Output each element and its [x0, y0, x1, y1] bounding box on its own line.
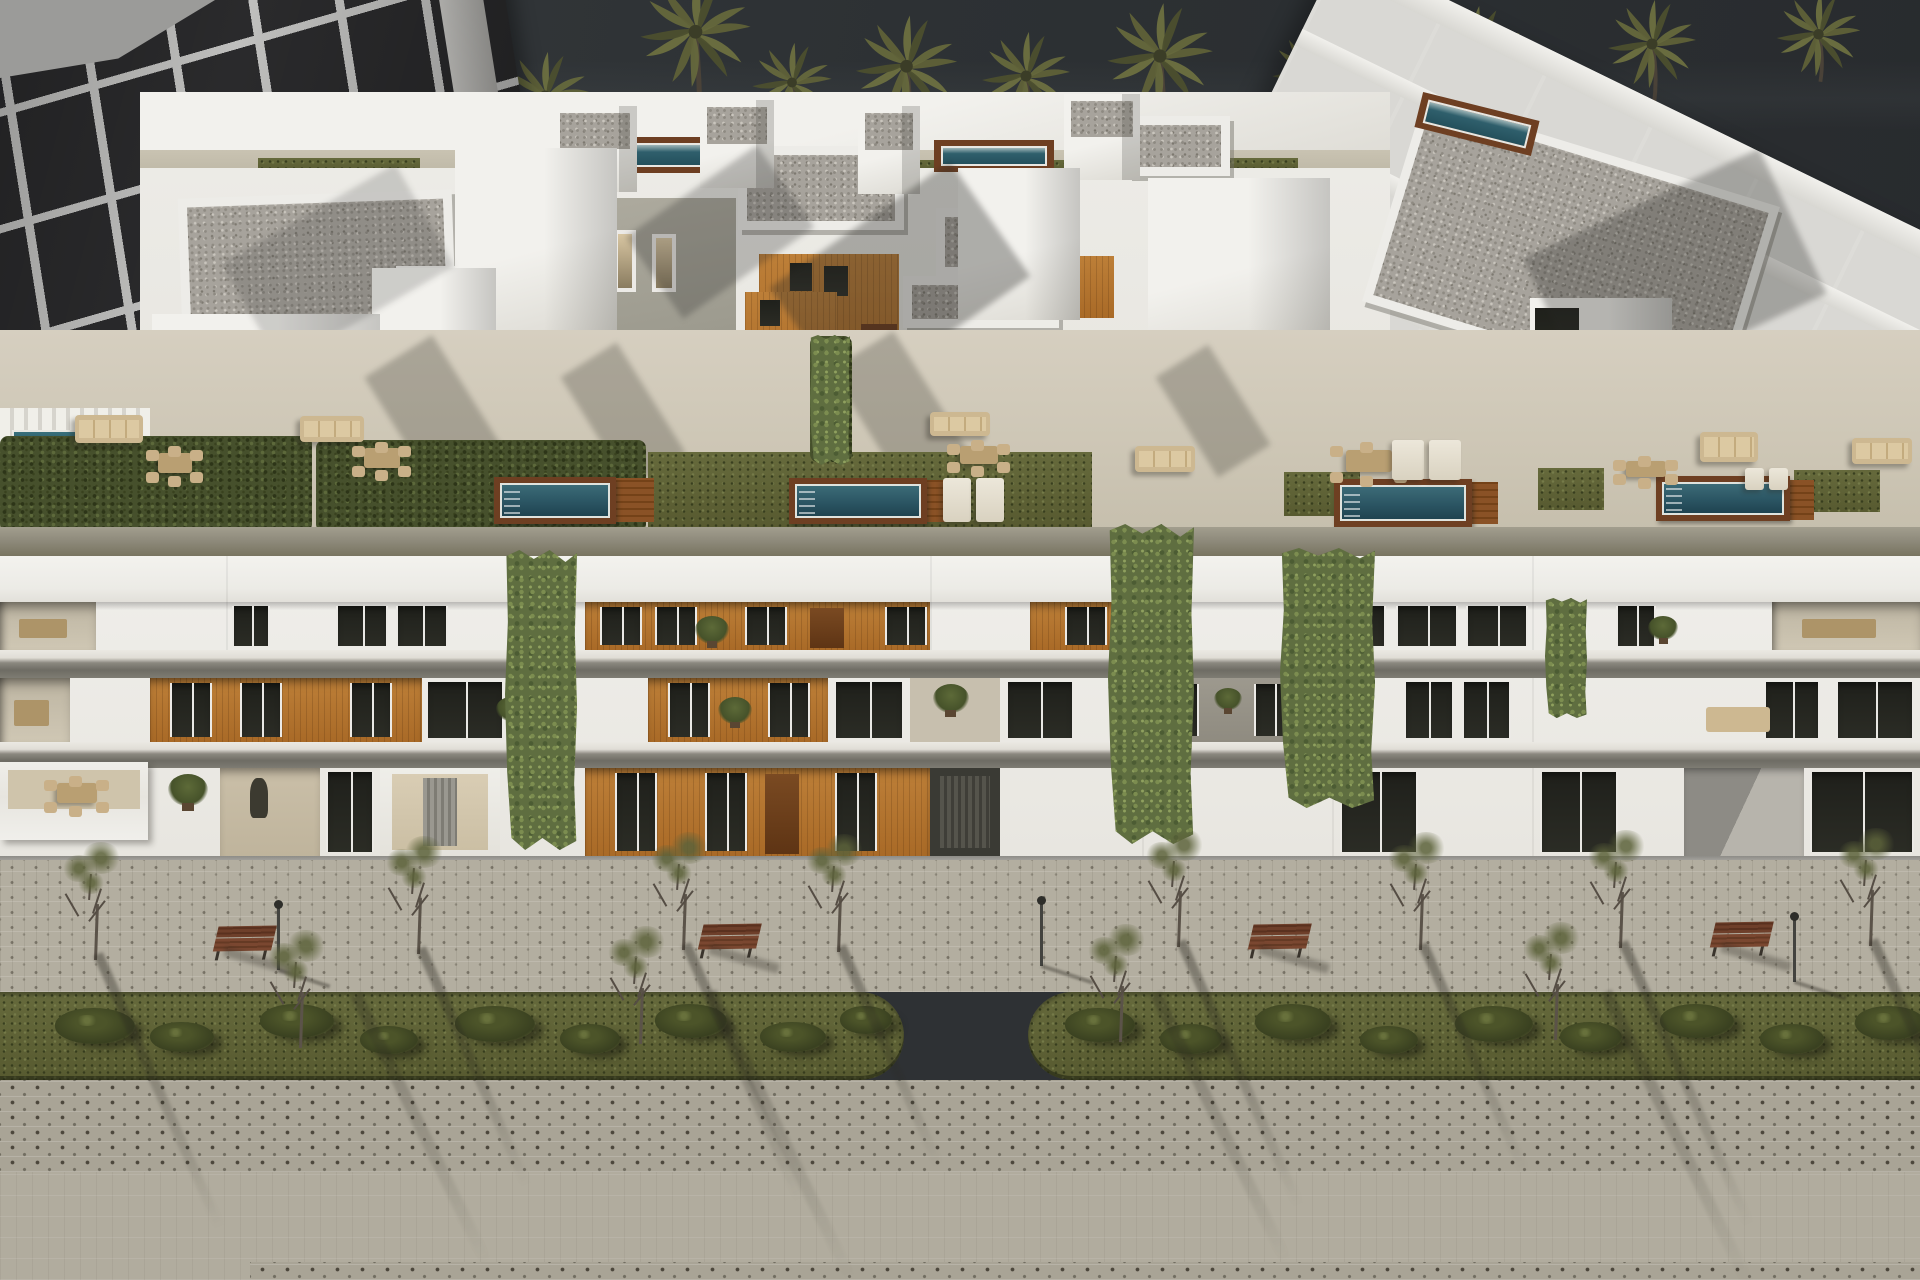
window	[834, 682, 904, 738]
white-volume	[1148, 178, 1330, 340]
balcony-slab	[0, 650, 1920, 678]
outdoor-dining-set	[146, 446, 204, 480]
shrub-highlight	[1873, 1013, 1894, 1023]
facade-bay-int	[0, 678, 70, 742]
outdoor-sofa	[1135, 446, 1195, 472]
pool-water	[500, 483, 610, 518]
facade-bay-win	[1000, 678, 1080, 742]
balcony-plant	[1648, 616, 1678, 640]
light-pole	[1793, 918, 1796, 982]
balcony-sofa	[1706, 707, 1770, 733]
window-mullion	[870, 682, 872, 738]
window-mullion	[1637, 606, 1639, 646]
shrub-highlight	[475, 1013, 499, 1024]
render-canvas	[0, 0, 1920, 1280]
lounger	[976, 478, 1004, 522]
pool-steps	[799, 488, 815, 514]
balcony-plant	[718, 697, 752, 724]
window-mullion	[1793, 682, 1795, 738]
window	[668, 683, 710, 737]
interior-furniture	[14, 700, 49, 726]
gravel-roof	[1128, 116, 1230, 176]
bench-back	[1713, 921, 1774, 933]
pool-water	[941, 146, 1047, 166]
facade-bay-woodrun	[648, 678, 828, 742]
window-mullion	[1876, 682, 1878, 738]
lounger	[1392, 440, 1424, 480]
dining-chair	[375, 442, 388, 453]
facade-bay-win2	[1392, 602, 1532, 650]
shrub-highlight	[75, 1015, 99, 1026]
window-mullion	[252, 606, 254, 646]
tree-foliage	[286, 930, 326, 962]
bottom-paver-edge	[250, 1262, 1920, 1280]
window	[1462, 682, 1512, 738]
shrub	[1760, 1024, 1824, 1054]
outdoor-dining-set	[1613, 456, 1679, 482]
sofa-cushions	[304, 421, 360, 437]
gravel-roof-surface	[1137, 125, 1221, 167]
outdoor-dining-set	[947, 440, 1011, 470]
plant-pot	[707, 641, 717, 648]
bench-back	[701, 923, 762, 935]
window-mullion	[1275, 684, 1277, 736]
sofa-cushions	[1856, 443, 1908, 459]
window-mullion	[262, 683, 264, 737]
window-mullion	[767, 607, 769, 645]
window-mullion	[1580, 772, 1582, 852]
shrub-highlight	[673, 1011, 695, 1021]
pool-steps	[1344, 489, 1360, 517]
shrub-highlight	[1679, 1011, 1701, 1021]
tree-foliage	[81, 842, 121, 874]
facade-bay-ramp	[1684, 768, 1804, 856]
tree-foliage	[626, 926, 666, 958]
window-mullion	[423, 606, 425, 646]
dining-chair	[146, 472, 159, 483]
bench-back	[216, 925, 277, 937]
dining-chair	[44, 802, 57, 813]
window-mullion	[351, 772, 353, 852]
tree-foliage	[1856, 828, 1896, 860]
dining-chair	[96, 802, 109, 813]
facade-bay-woodrun	[585, 602, 930, 650]
window	[240, 683, 282, 737]
facade-bay-portaldark	[930, 768, 1000, 856]
outdoor-dining-set	[44, 776, 110, 810]
shrub	[1255, 1004, 1331, 1040]
dining-chair	[1613, 474, 1626, 485]
pool-water	[1340, 485, 1466, 521]
terrace-grass	[1538, 468, 1604, 510]
lounger	[1769, 468, 1788, 490]
balcony-plant	[168, 774, 208, 806]
window	[655, 607, 697, 645]
sofa-cushions	[79, 420, 139, 438]
shrub-highlight	[1375, 1032, 1392, 1040]
window	[1396, 606, 1458, 646]
sofa-cushions	[934, 417, 986, 431]
facade-bay-win	[828, 678, 910, 742]
sun-loungers	[943, 478, 1009, 522]
facade-bay-win	[226, 602, 276, 650]
facade-bay-int	[1772, 602, 1920, 650]
vine-cascade	[810, 335, 850, 465]
shrub-highlight	[1475, 1013, 1498, 1024]
vine-cascade	[1108, 524, 1194, 844]
dining-chair	[168, 446, 181, 457]
facade-bay-plant	[150, 768, 220, 856]
window-mullion	[637, 773, 639, 851]
balcony-plant	[695, 616, 729, 643]
dining-chair	[69, 776, 82, 787]
bulkhead-shade-face	[1122, 94, 1140, 180]
dining-chair	[190, 472, 203, 483]
dining-table	[1346, 450, 1393, 473]
vine-cascade	[505, 550, 577, 850]
dining-chair	[96, 780, 109, 791]
patio-pot-plant	[250, 778, 268, 818]
window	[885, 607, 927, 645]
outdoor-dining-set	[352, 442, 412, 474]
facade-bay-intplant	[910, 678, 1000, 742]
shrub	[560, 1024, 620, 1054]
window-mullion	[1087, 607, 1089, 645]
facade-bay-win	[1830, 678, 1920, 742]
shrub-highlight	[166, 1028, 185, 1037]
pool-water	[795, 484, 921, 518]
dining-chair	[1330, 446, 1343, 457]
window-mullion	[907, 607, 909, 645]
tree-foliage	[669, 832, 709, 864]
shrub	[1360, 1026, 1418, 1054]
window-mullion	[1487, 682, 1489, 738]
dining-chair	[1330, 472, 1343, 483]
window	[745, 607, 787, 645]
window-mullion	[372, 683, 374, 737]
shrub	[455, 1006, 535, 1042]
window	[170, 683, 212, 737]
facade-bay-win	[320, 768, 380, 856]
shrub	[260, 1004, 334, 1038]
dining-chair	[1360, 476, 1373, 487]
window	[1836, 682, 1914, 738]
window-mullion	[1380, 772, 1382, 852]
dining-chair	[997, 462, 1010, 473]
shrub-highlight	[1576, 1028, 1595, 1037]
interior-furniture	[19, 619, 67, 638]
pool-steps	[504, 487, 520, 514]
parapet-face	[0, 556, 1920, 602]
window	[1065, 607, 1107, 645]
outdoor-sofa	[1852, 438, 1912, 464]
plant-pot	[730, 722, 740, 729]
tree-foliage	[824, 834, 864, 866]
dining-chair	[375, 470, 388, 481]
light-pole-head	[1037, 896, 1046, 905]
window-mullion	[790, 683, 792, 737]
shrub-highlight	[575, 1030, 593, 1039]
window	[232, 606, 270, 646]
dining-chair	[69, 806, 82, 817]
bench-seat	[1710, 933, 1771, 947]
facade-bay-woodrun	[150, 678, 422, 742]
window	[768, 683, 810, 737]
vine-cascade	[1545, 598, 1587, 718]
window-mullion	[1428, 606, 1430, 646]
shrub	[1660, 1004, 1734, 1038]
outdoor-sofa	[75, 415, 143, 443]
window-mullion	[677, 607, 679, 645]
dining-chair	[352, 446, 365, 457]
window	[326, 772, 374, 852]
shrub	[1065, 1008, 1135, 1042]
dining-chair	[352, 466, 365, 477]
dotted-paver-band	[0, 1080, 1920, 1172]
dining-chair	[44, 780, 57, 791]
facade-bay-win2	[332, 602, 452, 650]
dining-chair	[1638, 456, 1651, 467]
pool-wood-deck	[1468, 482, 1498, 524]
plant-pot	[945, 710, 956, 717]
dining-chair	[190, 450, 203, 461]
window	[1404, 682, 1454, 738]
sofa-cushions	[1704, 437, 1754, 457]
window	[426, 682, 504, 738]
plant-pot	[1224, 708, 1232, 714]
dining-chair	[1638, 478, 1651, 489]
volume-shade	[1148, 178, 1330, 340]
window	[396, 606, 448, 646]
shrub-highlight	[777, 1028, 797, 1037]
plant-pot	[182, 803, 194, 811]
sun-loungers	[1745, 468, 1793, 490]
facade-bay-win2	[1400, 678, 1515, 742]
lounger	[1745, 468, 1764, 490]
light-pole	[1040, 902, 1043, 966]
lounger	[1429, 440, 1461, 480]
tree-foliage	[1164, 829, 1204, 861]
dining-chair	[947, 462, 960, 473]
tree-foliage	[1106, 924, 1146, 956]
bench-seat	[213, 937, 274, 951]
bench-seat	[698, 935, 759, 949]
pool-steps	[1666, 486, 1682, 511]
sofa-cushions	[1139, 451, 1191, 467]
dining-chair	[398, 446, 411, 457]
outdoor-sofa	[300, 416, 364, 442]
balcony-slab	[0, 742, 1920, 768]
sun-loungers	[1392, 440, 1466, 480]
facade-bay-winplant	[1612, 602, 1682, 650]
terrace-plunge-pool	[789, 478, 927, 524]
dining-chair	[971, 466, 984, 477]
plant-pot	[1659, 638, 1668, 644]
entry-door	[940, 776, 990, 848]
light-pole-head	[274, 900, 283, 909]
shrub	[150, 1022, 214, 1052]
window	[1466, 606, 1528, 646]
outdoor-sofa	[930, 412, 990, 436]
tree-foliage	[1541, 922, 1581, 954]
light-pole-head	[1790, 912, 1799, 921]
penthouse-wood-window	[760, 300, 780, 326]
tree-foliage	[1606, 830, 1646, 862]
dining-chair	[997, 444, 1010, 455]
tree-foliage	[1406, 832, 1446, 864]
dining-chair	[168, 476, 181, 487]
shrub	[760, 1022, 826, 1052]
window-mullion	[727, 773, 729, 851]
balcony-plant	[1214, 688, 1242, 710]
dining-chair	[146, 450, 159, 461]
window-mullion	[363, 606, 365, 646]
window	[705, 773, 747, 851]
facade-bay-patio	[220, 768, 320, 856]
window-mullion	[622, 607, 624, 645]
balcony-plant	[933, 684, 969, 713]
terrace-plunge-pool	[1334, 479, 1472, 527]
stair-bulkhead	[858, 106, 920, 194]
dining-chair	[971, 440, 984, 451]
wood-door	[810, 608, 844, 648]
shrub-highlight	[1083, 1015, 1104, 1025]
dining-chair	[947, 444, 960, 455]
window-mullion	[690, 683, 692, 737]
dining-chair	[1613, 460, 1626, 471]
facade-bay-sofa	[1700, 678, 1830, 742]
outdoor-sofa	[1700, 432, 1758, 462]
wood-door	[765, 774, 799, 854]
shrub-highlight	[1776, 1030, 1795, 1039]
shrub-highlight	[1274, 1011, 1297, 1022]
interior-furniture	[1802, 619, 1876, 638]
shrub	[1560, 1022, 1622, 1052]
dining-chair	[1665, 460, 1678, 471]
facade-bay-woodrun	[585, 768, 930, 856]
facade-bay-int	[0, 602, 96, 650]
pool-wood-deck	[612, 478, 654, 522]
vine-cascade	[1280, 548, 1375, 808]
bench-back	[1251, 923, 1312, 935]
dining-chair	[1360, 442, 1373, 453]
shrub-highlight	[279, 1011, 301, 1021]
dining-chair	[398, 466, 411, 477]
window	[600, 607, 642, 645]
window	[350, 683, 392, 737]
bulkhead-shade-face	[619, 106, 637, 192]
lounger	[943, 478, 971, 522]
window	[615, 773, 657, 851]
window-mullion	[1498, 606, 1500, 646]
window	[1006, 682, 1074, 738]
window	[336, 606, 388, 646]
window-mullion	[1041, 682, 1043, 738]
window-mullion	[192, 683, 194, 737]
dining-chair	[1665, 474, 1678, 485]
bulkhead-shade-face	[902, 106, 920, 194]
bench-seat	[1248, 935, 1309, 949]
window-mullion	[466, 682, 468, 738]
parapet-top	[0, 527, 1920, 556]
window	[1764, 682, 1820, 738]
tree-foliage	[404, 836, 444, 868]
window-mullion	[1429, 682, 1431, 738]
terrace-plunge-pool	[494, 477, 616, 524]
